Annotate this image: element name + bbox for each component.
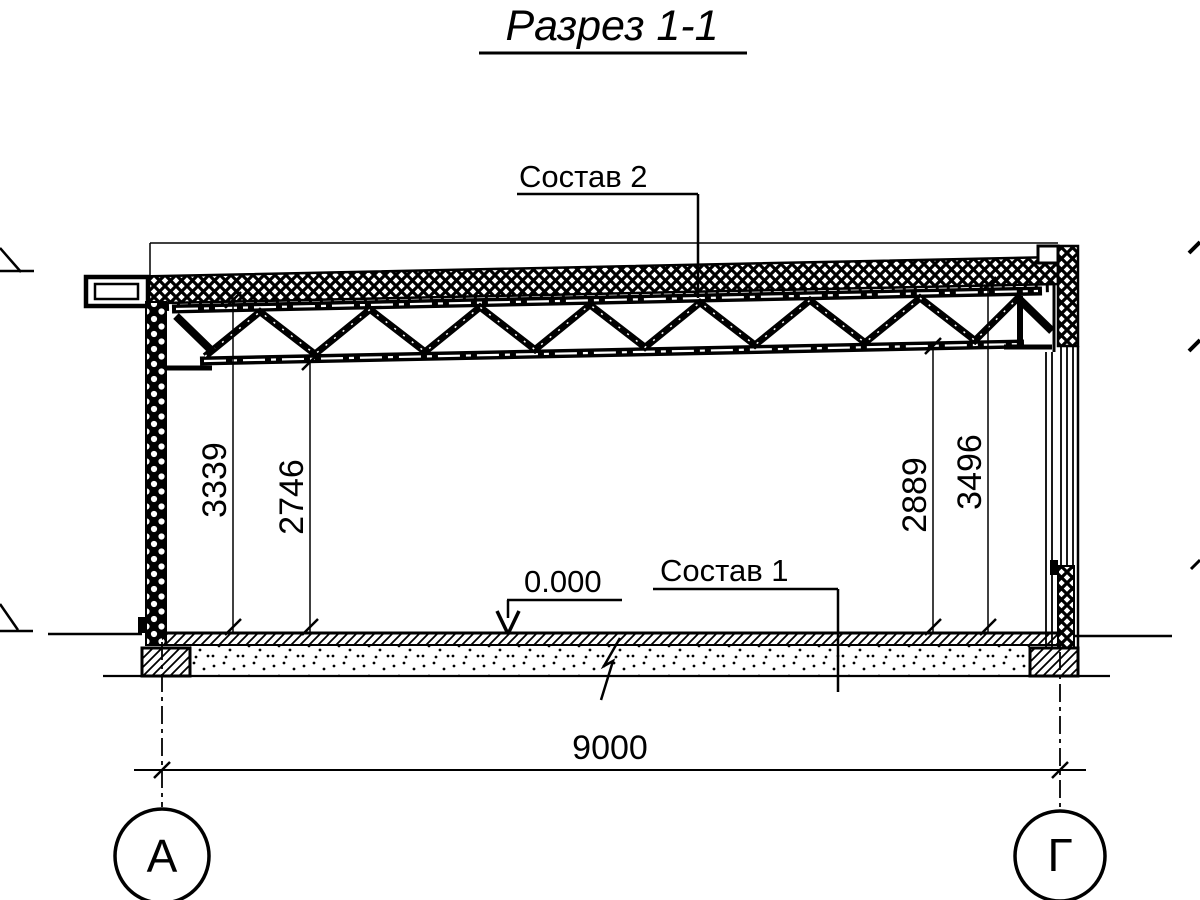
edge-level-tick bbox=[1189, 242, 1200, 253]
foundation-left bbox=[142, 648, 190, 676]
callout-floor-label: Состав 1 bbox=[660, 553, 789, 588]
dim-text-right-outer: 3496 bbox=[951, 434, 989, 510]
right-wall-base-tab bbox=[1050, 560, 1058, 575]
edge-level-tick bbox=[0, 248, 21, 272]
right-wall-lower-masonry bbox=[1058, 566, 1074, 648]
callout-roof-label: Состав 2 bbox=[519, 159, 648, 194]
drawing-sheet: Разрез 1-1 А bbox=[0, 0, 1200, 900]
level-mark-arrow bbox=[497, 611, 508, 634]
truss-left-support-diagonal bbox=[176, 316, 213, 352]
roof-eaves-core bbox=[95, 284, 138, 299]
dim-text-left-outer: 3339 bbox=[196, 442, 234, 518]
left-wall-base-tab bbox=[138, 617, 146, 633]
right-parapet-beam bbox=[1038, 246, 1058, 263]
level-mark-text: 0.000 bbox=[524, 564, 602, 599]
axis-label-left: А bbox=[147, 830, 178, 882]
edge-level-tick bbox=[0, 604, 18, 630]
dim-text-right-inner: 2889 bbox=[896, 457, 934, 533]
foundation-right bbox=[1030, 648, 1078, 676]
page-title: Разрез 1-1 bbox=[505, 2, 718, 50]
right-parapet bbox=[1058, 246, 1078, 346]
edge-level-tick bbox=[1189, 340, 1200, 351]
left-wall bbox=[146, 302, 166, 645]
dim-text-span: 9000 bbox=[572, 729, 648, 767]
dim-text-left-inner: 2746 bbox=[273, 459, 311, 535]
level-mark-arrow bbox=[508, 611, 519, 634]
section-drawing: Разрез 1-1 А bbox=[0, 0, 1200, 900]
axis-label-right: Г bbox=[1048, 829, 1073, 881]
edge-level-tick bbox=[1191, 560, 1200, 569]
